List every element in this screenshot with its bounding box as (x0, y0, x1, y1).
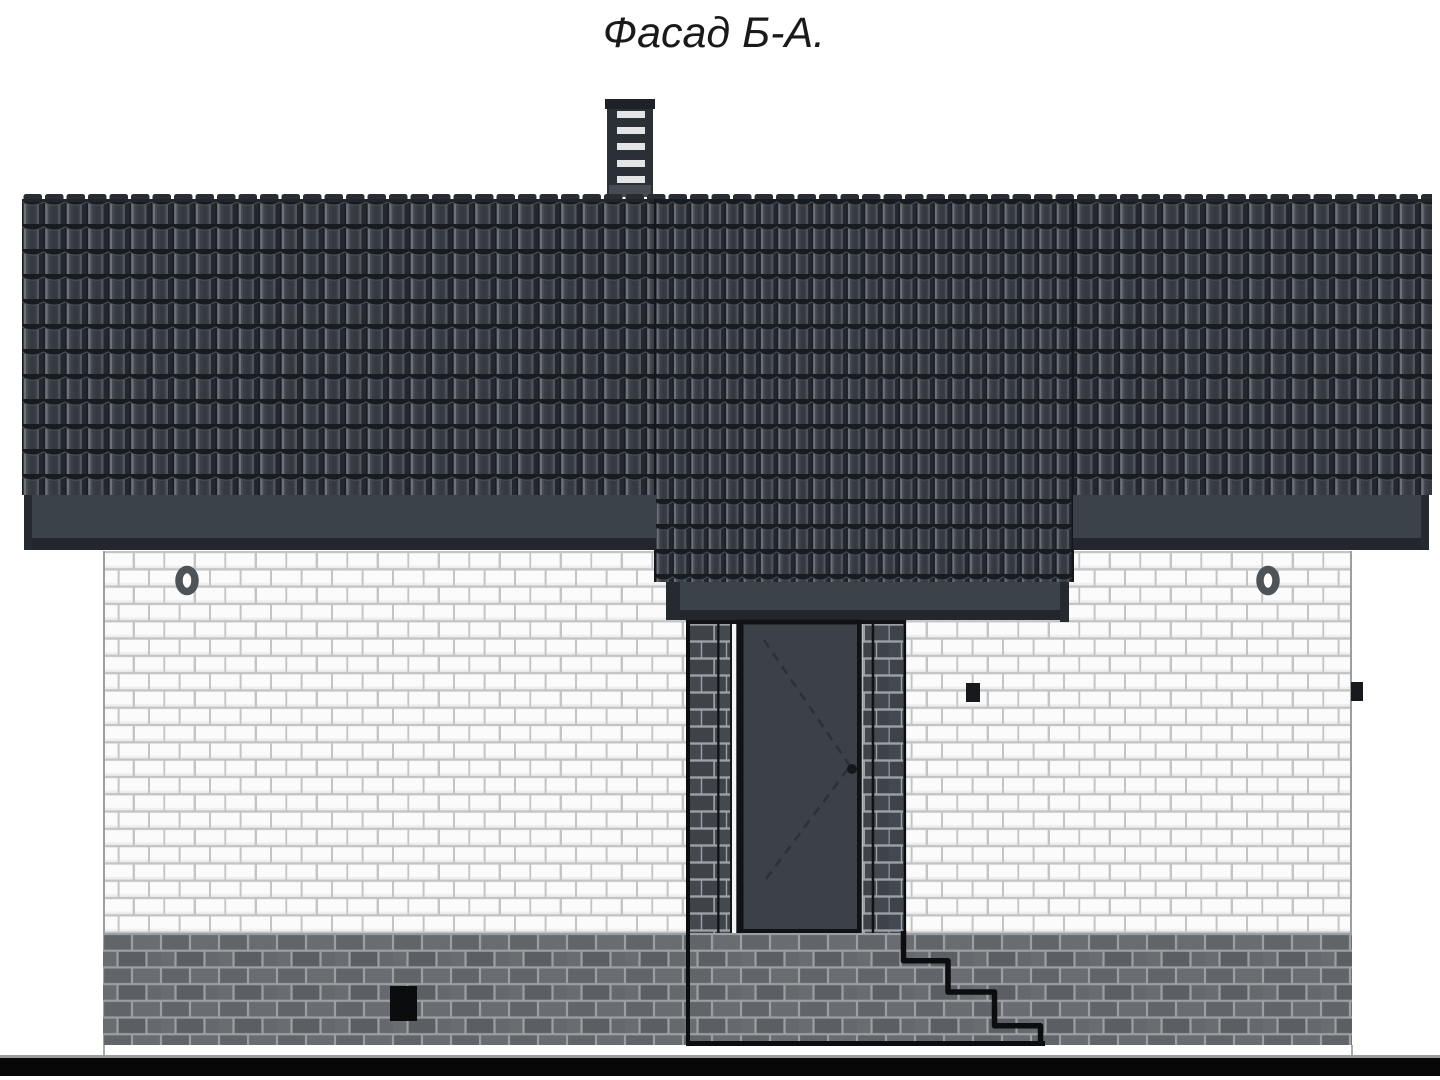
svg-text:Фасад Б-А.: Фасад Б-А. (603, 9, 825, 57)
